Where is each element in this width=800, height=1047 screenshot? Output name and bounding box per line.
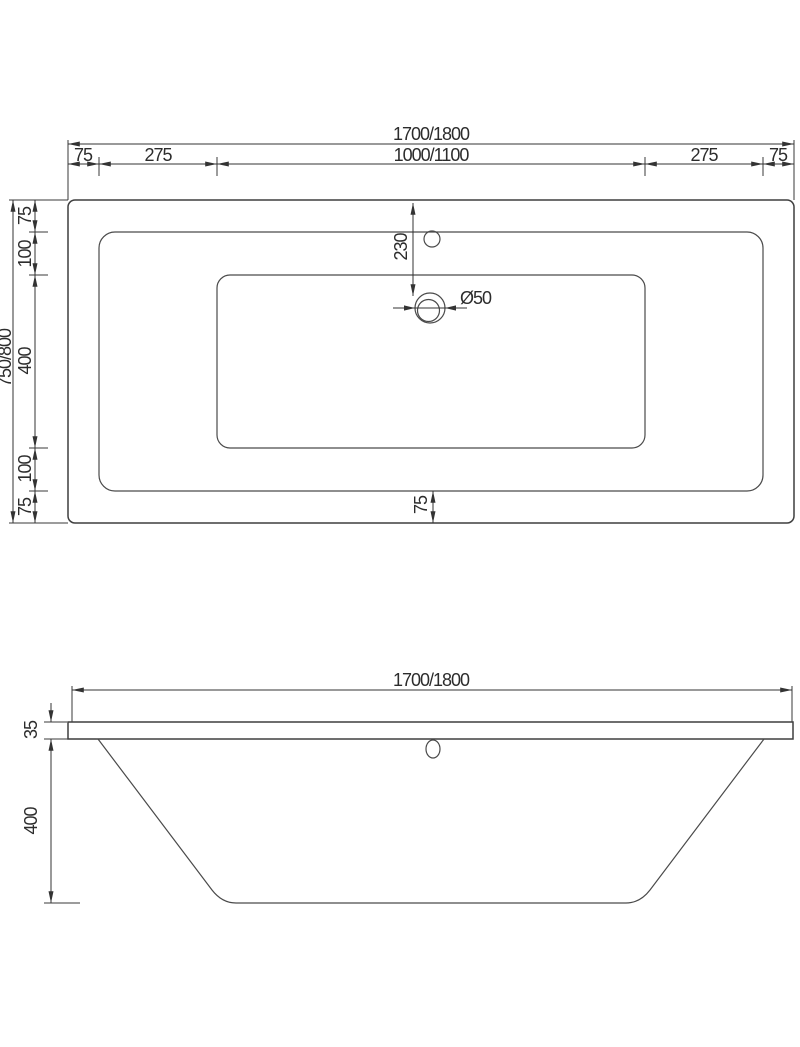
dim-label-overall-width: 1700/1800	[393, 124, 470, 144]
dim-label-depth-seg-2: 100	[15, 240, 35, 268]
tub-basin-bottom-outline	[217, 275, 645, 448]
dim-label-overall-depth: 750/800	[0, 328, 15, 387]
dim-label-width-seg-2: 275	[144, 145, 172, 165]
dim-label-width-seg-5: 75	[769, 145, 788, 165]
dim-label-width-seg-4: 275	[690, 145, 718, 165]
drawing-svg: Ø50 230 75 1700/1800 75 275 1000/1100 27…	[0, 0, 800, 1047]
front-view: 1700/1800 35 400	[21, 670, 793, 903]
dim-label-depth-seg-5: 75	[15, 497, 35, 516]
tub-inner-rim-outline	[99, 232, 763, 491]
dim-label-drain-offset: 230	[391, 233, 411, 261]
dim-label-depth-seg-4: 100	[15, 455, 35, 483]
drain-icon	[393, 293, 467, 323]
dim-label-body-depth: 400	[21, 807, 41, 835]
plan-view: Ø50 230 75 1700/1800 75 275 1000/1100 27…	[0, 124, 794, 523]
dim-label-rim-thickness: 35	[21, 720, 41, 739]
dim-label-bottom-rim: 75	[411, 495, 431, 514]
dim-label-front-width: 1700/1800	[393, 670, 470, 690]
technical-drawing: Ø50 230 75 1700/1800 75 275 1000/1100 27…	[0, 0, 800, 1047]
tub-body-outline	[98, 739, 764, 903]
dim-label-drain-diameter: Ø50	[460, 288, 492, 308]
dim-label-width-seg-3: 1000/1100	[394, 145, 470, 165]
tub-outer-rim-outline	[68, 200, 794, 523]
rim-slab-outline	[68, 722, 793, 739]
dim-label-width-seg-1: 75	[74, 145, 93, 165]
front-overflow-hole-icon	[426, 740, 440, 758]
dim-label-depth-seg-1: 75	[15, 206, 35, 225]
dim-label-depth-seg-3: 400	[15, 347, 35, 375]
overflow-hole-icon	[424, 231, 440, 247]
